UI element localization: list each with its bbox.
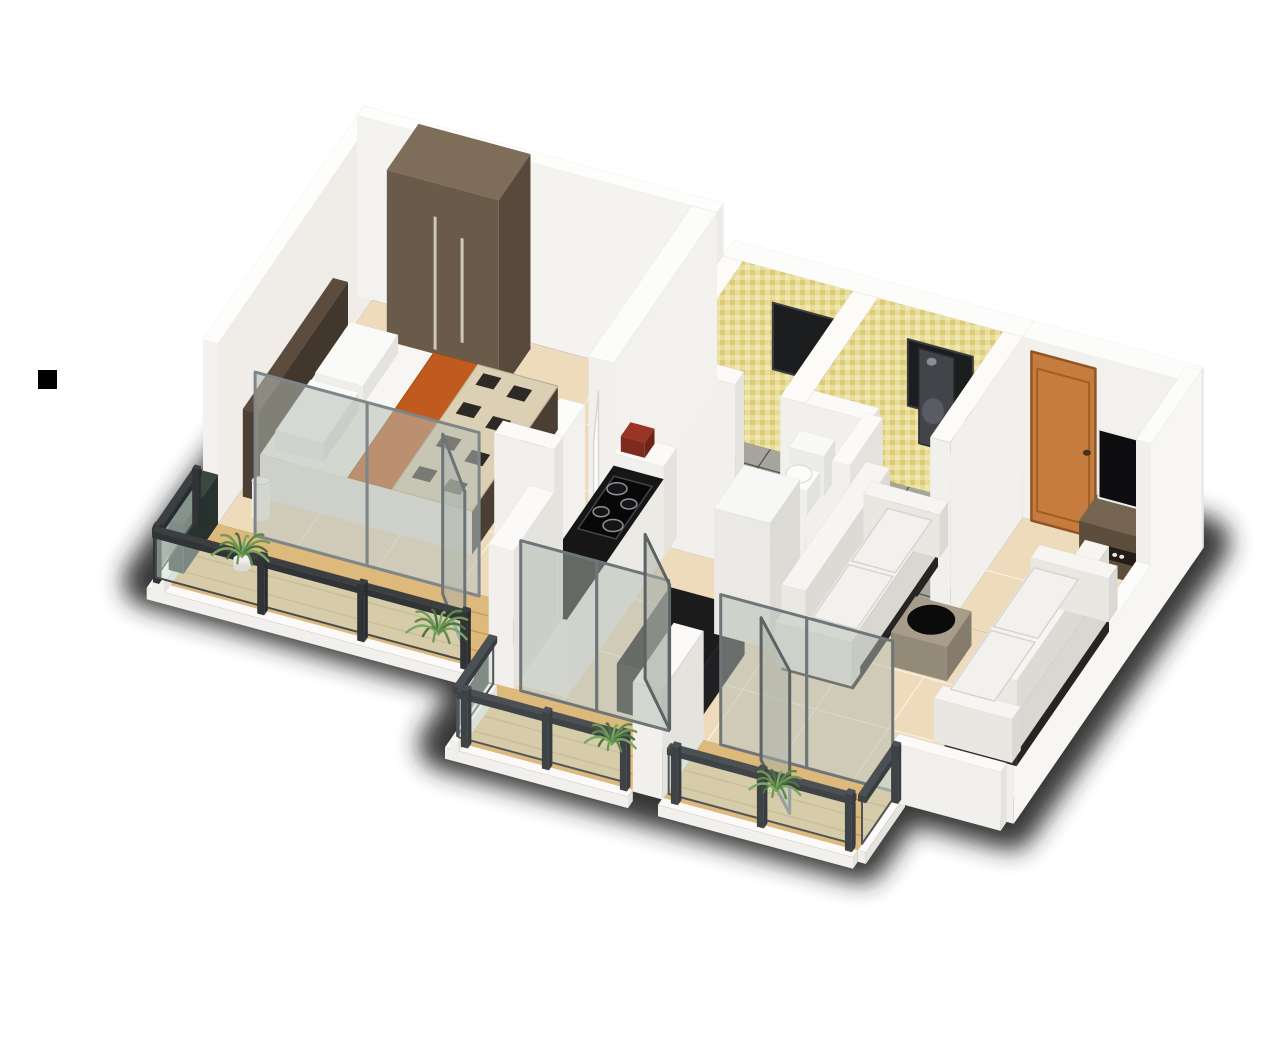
- wardrobe-door-seam: [461, 238, 464, 343]
- burner: [593, 507, 609, 517]
- screenshot-root: [0, 0, 1270, 1049]
- shower-head: [927, 358, 937, 366]
- burner: [603, 520, 623, 532]
- railing-post: [845, 788, 856, 852]
- railing-post: [461, 685, 472, 749]
- railing-post: [357, 578, 368, 642]
- railing-post: [192, 465, 201, 528]
- tv-cabinet-knob: [1112, 553, 1117, 557]
- door-handle: [1083, 450, 1091, 456]
- burner: [621, 499, 637, 509]
- kitchen-balcony-glass-door: [521, 541, 597, 712]
- railing-post: [891, 741, 901, 804]
- bedroom-balcony-glass-door: [255, 372, 367, 566]
- railing-post: [257, 551, 268, 615]
- burner: [607, 483, 627, 495]
- tv-cabinet-knob: [1119, 555, 1124, 559]
- railing-post: [671, 741, 682, 805]
- railing-post: [542, 706, 553, 770]
- black-square-marker: [38, 370, 57, 389]
- apartment-3d-floorplan-render: [0, 0, 1270, 1049]
- wardrobe-door-seam: [434, 216, 437, 350]
- shower-mixer: [922, 398, 944, 424]
- table-bowl: [907, 605, 955, 635]
- entry-door: [1031, 351, 1095, 537]
